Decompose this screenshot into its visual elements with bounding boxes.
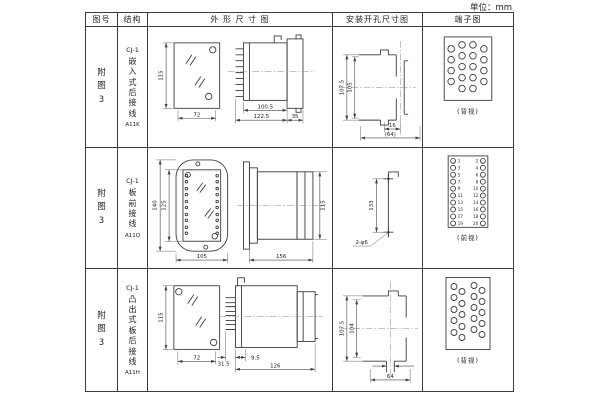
dim-label: 16 — [389, 123, 396, 129]
terminal-diagram-cell: 1 3 5 7 9 11 13 15 17 19 2 4 6 8 10 12 1 — [423, 148, 513, 269]
terminal-number: 7 — [458, 179, 461, 185]
dim-label: (64) — [385, 132, 396, 138]
dim-label: 140 — [153, 200, 159, 211]
outline-diagram-cell: 115 72 31.5 — [148, 269, 333, 391]
side-view: 100.5 122.5 35 — [228, 35, 315, 123]
terminal-number: 6 — [476, 172, 479, 178]
dim-label: 126 — [270, 363, 281, 369]
model-code: A11H — [125, 370, 140, 376]
mounting-hole-diagram: 107.5 104 64 — [333, 269, 422, 391]
terminal-holes — [451, 158, 486, 225]
terminal-number: 10 — [473, 186, 479, 192]
header-fig-no: 图号 — [86, 13, 118, 27]
fig-no-cell: 附图3 — [86, 269, 118, 391]
header-terminal: 端子图 — [423, 13, 513, 27]
terminal-number: 20 — [473, 221, 479, 227]
dim-label: 105 — [197, 254, 207, 260]
terminal-number: 19 — [458, 221, 464, 227]
side-view: 156 115 — [238, 162, 327, 263]
terminal-number: 3 — [458, 165, 461, 171]
model-code: A11K — [125, 122, 139, 128]
spec-table: 图号 结构 外 形 尺 寸 图 安装开孔尺寸图 端子图 附图3 CJ-1 嵌入式… — [85, 12, 514, 392]
view-caption: (前视) — [457, 233, 479, 242]
structure-cell: CJ-1 嵌入式后接线 A11K — [118, 27, 148, 148]
mounting-hole-diagram: 107.5 105 16 (64) — [333, 27, 422, 147]
dim-label: 104 — [349, 323, 355, 334]
dim-label: 156 — [276, 254, 287, 260]
structure-name: 嵌入式后接线 — [129, 57, 137, 119]
outline-dimension-diagram: 115 72 31.5 — [148, 269, 332, 391]
dim-label: 122.5 — [254, 114, 270, 120]
header-outline: 外 形 尺 寸 图 — [148, 13, 333, 27]
dim-label: 125 — [162, 200, 168, 210]
fig-no-cell: 附图3 — [86, 27, 118, 148]
structure-cell: CJ-1 板前接线 A11Q — [118, 148, 148, 269]
structure-prefix: CJ-1 — [126, 177, 139, 185]
terminal-number: 2 — [476, 158, 479, 164]
outline-dimension-diagram: 115 72 100.5 122.5 — [148, 27, 332, 147]
outline-dimension-diagram: 140 125 105 156 — [148, 148, 332, 268]
terminal-number: 15 — [458, 207, 464, 213]
dim-label: 115 — [158, 312, 164, 322]
terminal-diagram-cell: (背视) — [423, 27, 513, 148]
dim-label: 9.5 — [251, 355, 260, 361]
fig-no: 附图3 — [97, 67, 106, 107]
structure: CJ-1 凸出式板后接线 A11H — [125, 284, 140, 377]
dim-label: 35 — [292, 114, 299, 120]
dim-label: 105 — [347, 82, 353, 92]
fig-no-cell: 附图3 — [86, 148, 118, 269]
header-mounting: 安装开孔尺寸图 — [333, 13, 423, 27]
header-structure: 结构 — [118, 13, 148, 27]
front-view: 115 72 — [159, 43, 220, 121]
fig-no: 附图3 — [97, 310, 106, 350]
page: 单位：mm 图号 结构 外 形 尺 寸 图 安装开孔尺寸图 端子图 附图3 CJ… — [0, 0, 600, 400]
dim-label: 100.5 — [258, 104, 274, 110]
view-caption: (背视) — [457, 356, 479, 365]
terminal-number: 9 — [458, 186, 461, 192]
terminal-number: 8 — [476, 179, 479, 185]
front-view: 140 125 105 — [153, 160, 228, 263]
view-caption: (背视) — [457, 106, 479, 115]
terminal-numbers: 1 3 5 7 9 11 13 15 17 19 2 4 6 8 10 12 1 — [458, 158, 479, 226]
terminal-diagram-cell: (背视) — [423, 269, 513, 391]
terminal-number: 17 — [458, 214, 464, 220]
terminal-number: 12 — [473, 193, 479, 199]
terminal-holes — [448, 42, 487, 92]
mounting-diagram-cell: 107.5 104 64 — [333, 269, 423, 391]
dim-label: 115 — [159, 70, 165, 80]
terminal-number: 5 — [458, 172, 461, 178]
structure: CJ-1 嵌入式后接线 A11K — [125, 46, 139, 128]
terminal-number: 11 — [458, 193, 464, 199]
front-view: 115 72 — [158, 286, 219, 365]
dim-label: 133 — [369, 200, 375, 211]
terminal-number: 18 — [473, 214, 479, 220]
dim-label: 72 — [193, 355, 200, 361]
dim-label: 107.5 — [339, 321, 345, 337]
structure-cell: CJ-1 凸出式板后接线 A11H — [118, 269, 148, 391]
fig-no: 附图3 — [97, 188, 106, 228]
model-code: A11Q — [125, 233, 140, 239]
terminal-number: 16 — [473, 207, 479, 213]
hole-label: 2-φ6 — [355, 240, 368, 246]
dim-label: 107.5 — [339, 80, 345, 96]
terminal-number: 1 — [458, 158, 461, 164]
terminal-number: 4 — [476, 165, 479, 171]
structure-prefix: CJ-1 — [126, 46, 139, 54]
side-view: 31.5 9.5 126 — [217, 278, 323, 372]
structure-prefix: CJ-1 — [126, 284, 139, 292]
outline-diagram-cell: 115 72 100.5 122.5 — [148, 27, 333, 148]
terminal-number: 13 — [458, 200, 464, 206]
dim-label: 64 — [387, 374, 394, 380]
terminal-number: 14 — [473, 200, 479, 206]
dim-label: 115 — [320, 200, 326, 210]
mounting-diagram-cell: 107.5 105 16 (64) — [333, 27, 423, 148]
dim-label: 72 — [193, 112, 200, 118]
terminal-holes — [451, 283, 485, 341]
mounting-hole-diagram: 133 2-φ6 — [333, 148, 422, 268]
structure: CJ-1 板前接线 A11Q — [125, 177, 140, 239]
terminal-diagram: (背视) — [423, 27, 513, 147]
structure-name: 板前接线 — [129, 188, 137, 230]
mounting-diagram-cell: 133 2-φ6 — [333, 148, 423, 269]
outline-diagram-cell: 140 125 105 156 — [148, 148, 333, 269]
terminal-diagram: 1 3 5 7 9 11 13 15 17 19 2 4 6 8 10 12 1 — [423, 148, 513, 268]
structure-name: 凸出式板后接线 — [129, 295, 137, 368]
dim-label: 31.5 — [217, 361, 229, 367]
terminal-diagram: (背视) — [423, 269, 513, 391]
